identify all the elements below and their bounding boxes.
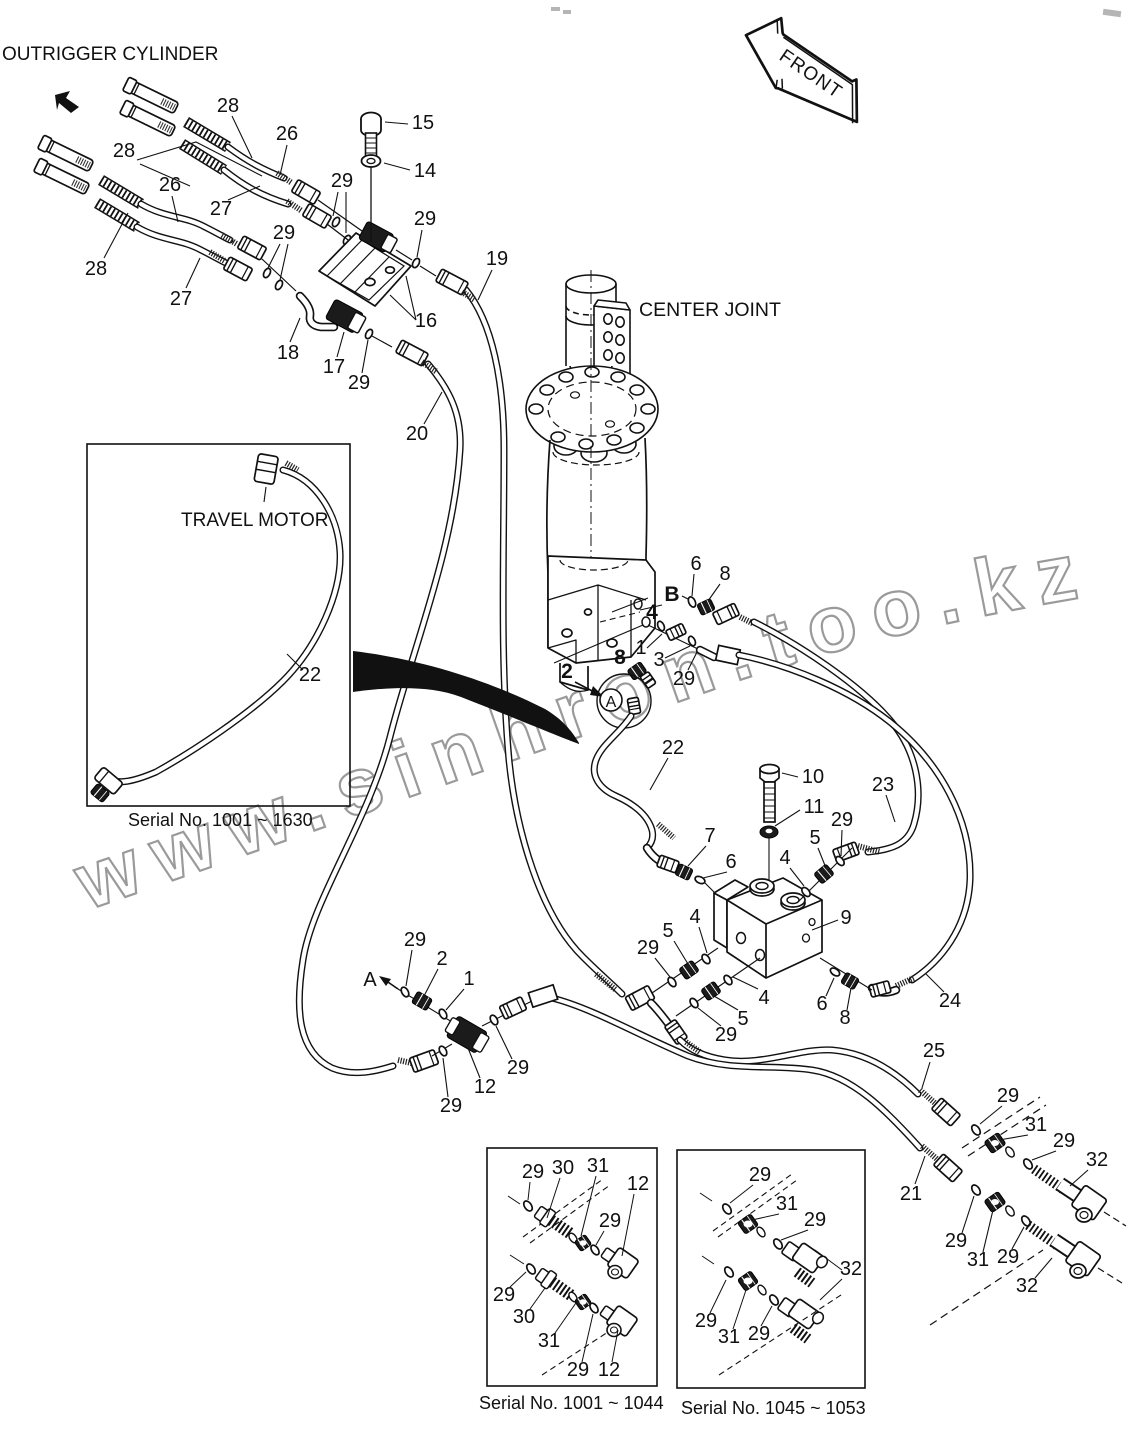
svg-text:27: 27 xyxy=(170,288,192,310)
svg-text:8: 8 xyxy=(614,646,626,669)
svg-text:22: 22 xyxy=(662,737,684,759)
svg-text:10: 10 xyxy=(802,766,824,788)
svg-text:29: 29 xyxy=(673,668,695,690)
svg-text:31: 31 xyxy=(538,1330,560,1352)
svg-text:15: 15 xyxy=(412,112,434,134)
svg-text:29: 29 xyxy=(997,1246,1019,1268)
svg-text:1: 1 xyxy=(463,968,474,990)
svg-text:12: 12 xyxy=(474,1076,496,1098)
svg-text:9: 9 xyxy=(840,907,851,929)
svg-text:29: 29 xyxy=(507,1057,529,1079)
svg-text:12: 12 xyxy=(598,1359,620,1381)
svg-text:32: 32 xyxy=(1086,1149,1108,1171)
svg-text:4: 4 xyxy=(758,987,769,1009)
svg-text:26: 26 xyxy=(276,123,298,145)
svg-text:4: 4 xyxy=(689,906,700,928)
svg-text:1: 1 xyxy=(635,637,646,659)
svg-text:A: A xyxy=(606,694,617,711)
svg-text:29: 29 xyxy=(1053,1130,1075,1152)
svg-text:8: 8 xyxy=(839,1007,850,1029)
svg-text:14: 14 xyxy=(414,160,436,182)
svg-text:27: 27 xyxy=(210,198,232,220)
svg-text:21: 21 xyxy=(900,1183,922,1205)
svg-text:29: 29 xyxy=(404,929,426,951)
svg-text:19: 19 xyxy=(486,248,508,270)
svg-text:31: 31 xyxy=(587,1155,609,1177)
svg-text:32: 32 xyxy=(840,1258,862,1280)
svg-text:16: 16 xyxy=(415,310,437,332)
svg-text:B: B xyxy=(664,583,679,606)
svg-text:31: 31 xyxy=(718,1326,740,1348)
svg-text:4: 4 xyxy=(779,847,790,869)
svg-text:31: 31 xyxy=(1025,1114,1047,1136)
svg-text:23: 23 xyxy=(872,774,894,796)
svg-text:29: 29 xyxy=(440,1095,462,1117)
svg-text:Serial No. 1001 ~ 1630: Serial No. 1001 ~ 1630 xyxy=(128,810,313,830)
svg-text:31: 31 xyxy=(776,1193,798,1215)
svg-text:29: 29 xyxy=(599,1210,621,1232)
svg-text:5: 5 xyxy=(809,827,820,849)
svg-text:OUTRIGGER CYLINDER: OUTRIGGER CYLINDER xyxy=(2,44,218,65)
svg-text:29: 29 xyxy=(493,1284,515,1306)
svg-text:24: 24 xyxy=(939,990,961,1012)
svg-text:29: 29 xyxy=(331,170,353,192)
svg-text:28: 28 xyxy=(113,140,135,162)
svg-text:17: 17 xyxy=(323,356,345,378)
svg-text:2: 2 xyxy=(561,660,573,683)
svg-text:29: 29 xyxy=(414,208,436,230)
svg-text:28: 28 xyxy=(85,258,107,280)
svg-text:26: 26 xyxy=(159,174,181,196)
svg-text:6: 6 xyxy=(690,553,701,575)
svg-text:29: 29 xyxy=(348,372,370,394)
svg-text:29: 29 xyxy=(945,1230,967,1252)
svg-text:28: 28 xyxy=(217,95,239,117)
svg-text:29: 29 xyxy=(273,222,295,244)
svg-text:29: 29 xyxy=(637,937,659,959)
svg-text:TRAVEL MOTOR: TRAVEL MOTOR xyxy=(181,510,328,531)
svg-text:30: 30 xyxy=(513,1306,535,1328)
svg-text:20: 20 xyxy=(406,423,428,445)
svg-text:3: 3 xyxy=(653,649,664,671)
svg-text:CENTER JOINT: CENTER JOINT xyxy=(639,299,781,321)
svg-text:2: 2 xyxy=(436,948,447,970)
svg-text:29: 29 xyxy=(997,1085,1019,1107)
svg-text:Serial No. 1001 ~ 1044: Serial No. 1001 ~ 1044 xyxy=(479,1393,664,1413)
svg-text:5: 5 xyxy=(662,920,673,942)
svg-text:29: 29 xyxy=(804,1209,826,1231)
svg-text:29: 29 xyxy=(715,1024,737,1046)
svg-text:11: 11 xyxy=(804,796,825,818)
svg-text:Serial No. 1045 ~ 1053: Serial No. 1045 ~ 1053 xyxy=(681,1398,866,1418)
svg-text:29: 29 xyxy=(748,1323,770,1345)
svg-text:29: 29 xyxy=(749,1164,771,1186)
svg-text:A: A xyxy=(363,969,377,991)
svg-text:29: 29 xyxy=(695,1310,717,1332)
svg-text:29: 29 xyxy=(831,809,853,831)
svg-text:6: 6 xyxy=(725,851,736,873)
svg-text:29: 29 xyxy=(522,1161,544,1183)
svg-text:30: 30 xyxy=(552,1157,574,1179)
svg-text:12: 12 xyxy=(627,1173,649,1195)
svg-text:18: 18 xyxy=(277,342,299,364)
svg-text:31: 31 xyxy=(967,1249,989,1271)
svg-text:32: 32 xyxy=(1016,1275,1038,1297)
svg-text:25: 25 xyxy=(923,1040,945,1062)
svg-text:4: 4 xyxy=(646,601,658,624)
svg-text:7: 7 xyxy=(704,825,715,847)
svg-text:8: 8 xyxy=(719,563,730,585)
svg-text:5: 5 xyxy=(737,1008,748,1030)
svg-text:22: 22 xyxy=(299,664,321,686)
svg-text:6: 6 xyxy=(816,993,827,1015)
svg-text:29: 29 xyxy=(567,1359,589,1381)
